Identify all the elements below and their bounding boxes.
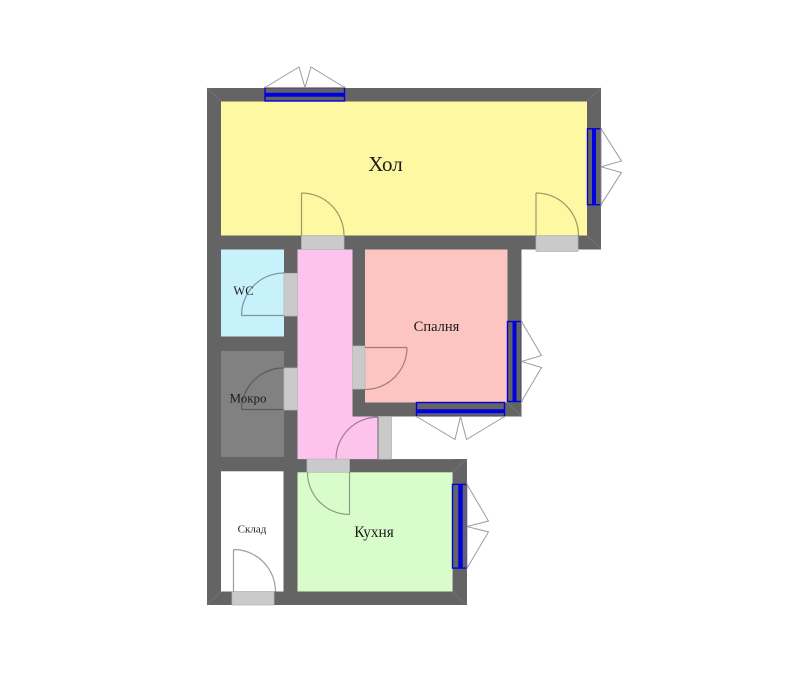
svg-text:Хол: Хол <box>368 152 403 176</box>
svg-text:Спалня: Спалня <box>414 319 460 335</box>
svg-text:WC: WC <box>233 284 253 298</box>
svg-text:Мокро: Мокро <box>229 391 266 406</box>
svg-text:Кухня: Кухня <box>354 524 394 541</box>
svg-text:Склад: Склад <box>238 524 267 536</box>
